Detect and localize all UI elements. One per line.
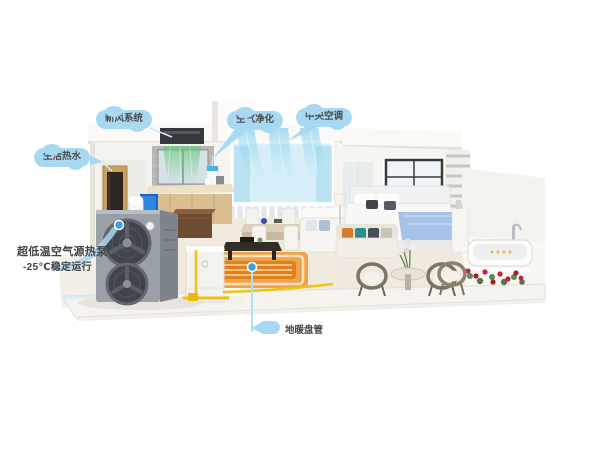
- callout-fresh-air: 新风系统: [96, 110, 152, 129]
- bedroom-console: [452, 200, 468, 252]
- heat-pump-outdoor-unit: [96, 210, 178, 304]
- callout-central-ac: 中央空调: [296, 108, 352, 127]
- callout-air-purify-label: 空气净化: [236, 114, 274, 125]
- callout-fresh-air-label: 新风系统: [105, 113, 143, 124]
- green-airflow: [163, 146, 201, 184]
- heat-pump-label-line1: 超低温空气源热泵: [17, 243, 107, 259]
- callout-air-purify: 空气净化: [227, 111, 283, 130]
- callout-hot-water-label: 生活热水: [43, 151, 81, 162]
- heat-pump-label-line2: -25℃稳定运行: [23, 258, 92, 273]
- anchor-dot-heat-pump: [115, 221, 124, 230]
- anchor-dot-floor-heating: [248, 263, 257, 272]
- callout-hot-water: 生活热水: [34, 148, 90, 167]
- callout-floor-heating-label: 地暖盘管: [285, 322, 323, 336]
- scene-svg: [0, 0, 600, 450]
- house-cutaway-scene: [0, 0, 600, 450]
- callout-central-ac-label: 中央空调: [305, 111, 343, 122]
- floor-heating-arrow-cloud: [258, 321, 280, 334]
- pillow-sofa: [336, 224, 398, 258]
- kitchen-island: [172, 209, 216, 238]
- ac-airflow-streams: [236, 128, 328, 182]
- fresh-air-ceiling-unit: [160, 128, 204, 144]
